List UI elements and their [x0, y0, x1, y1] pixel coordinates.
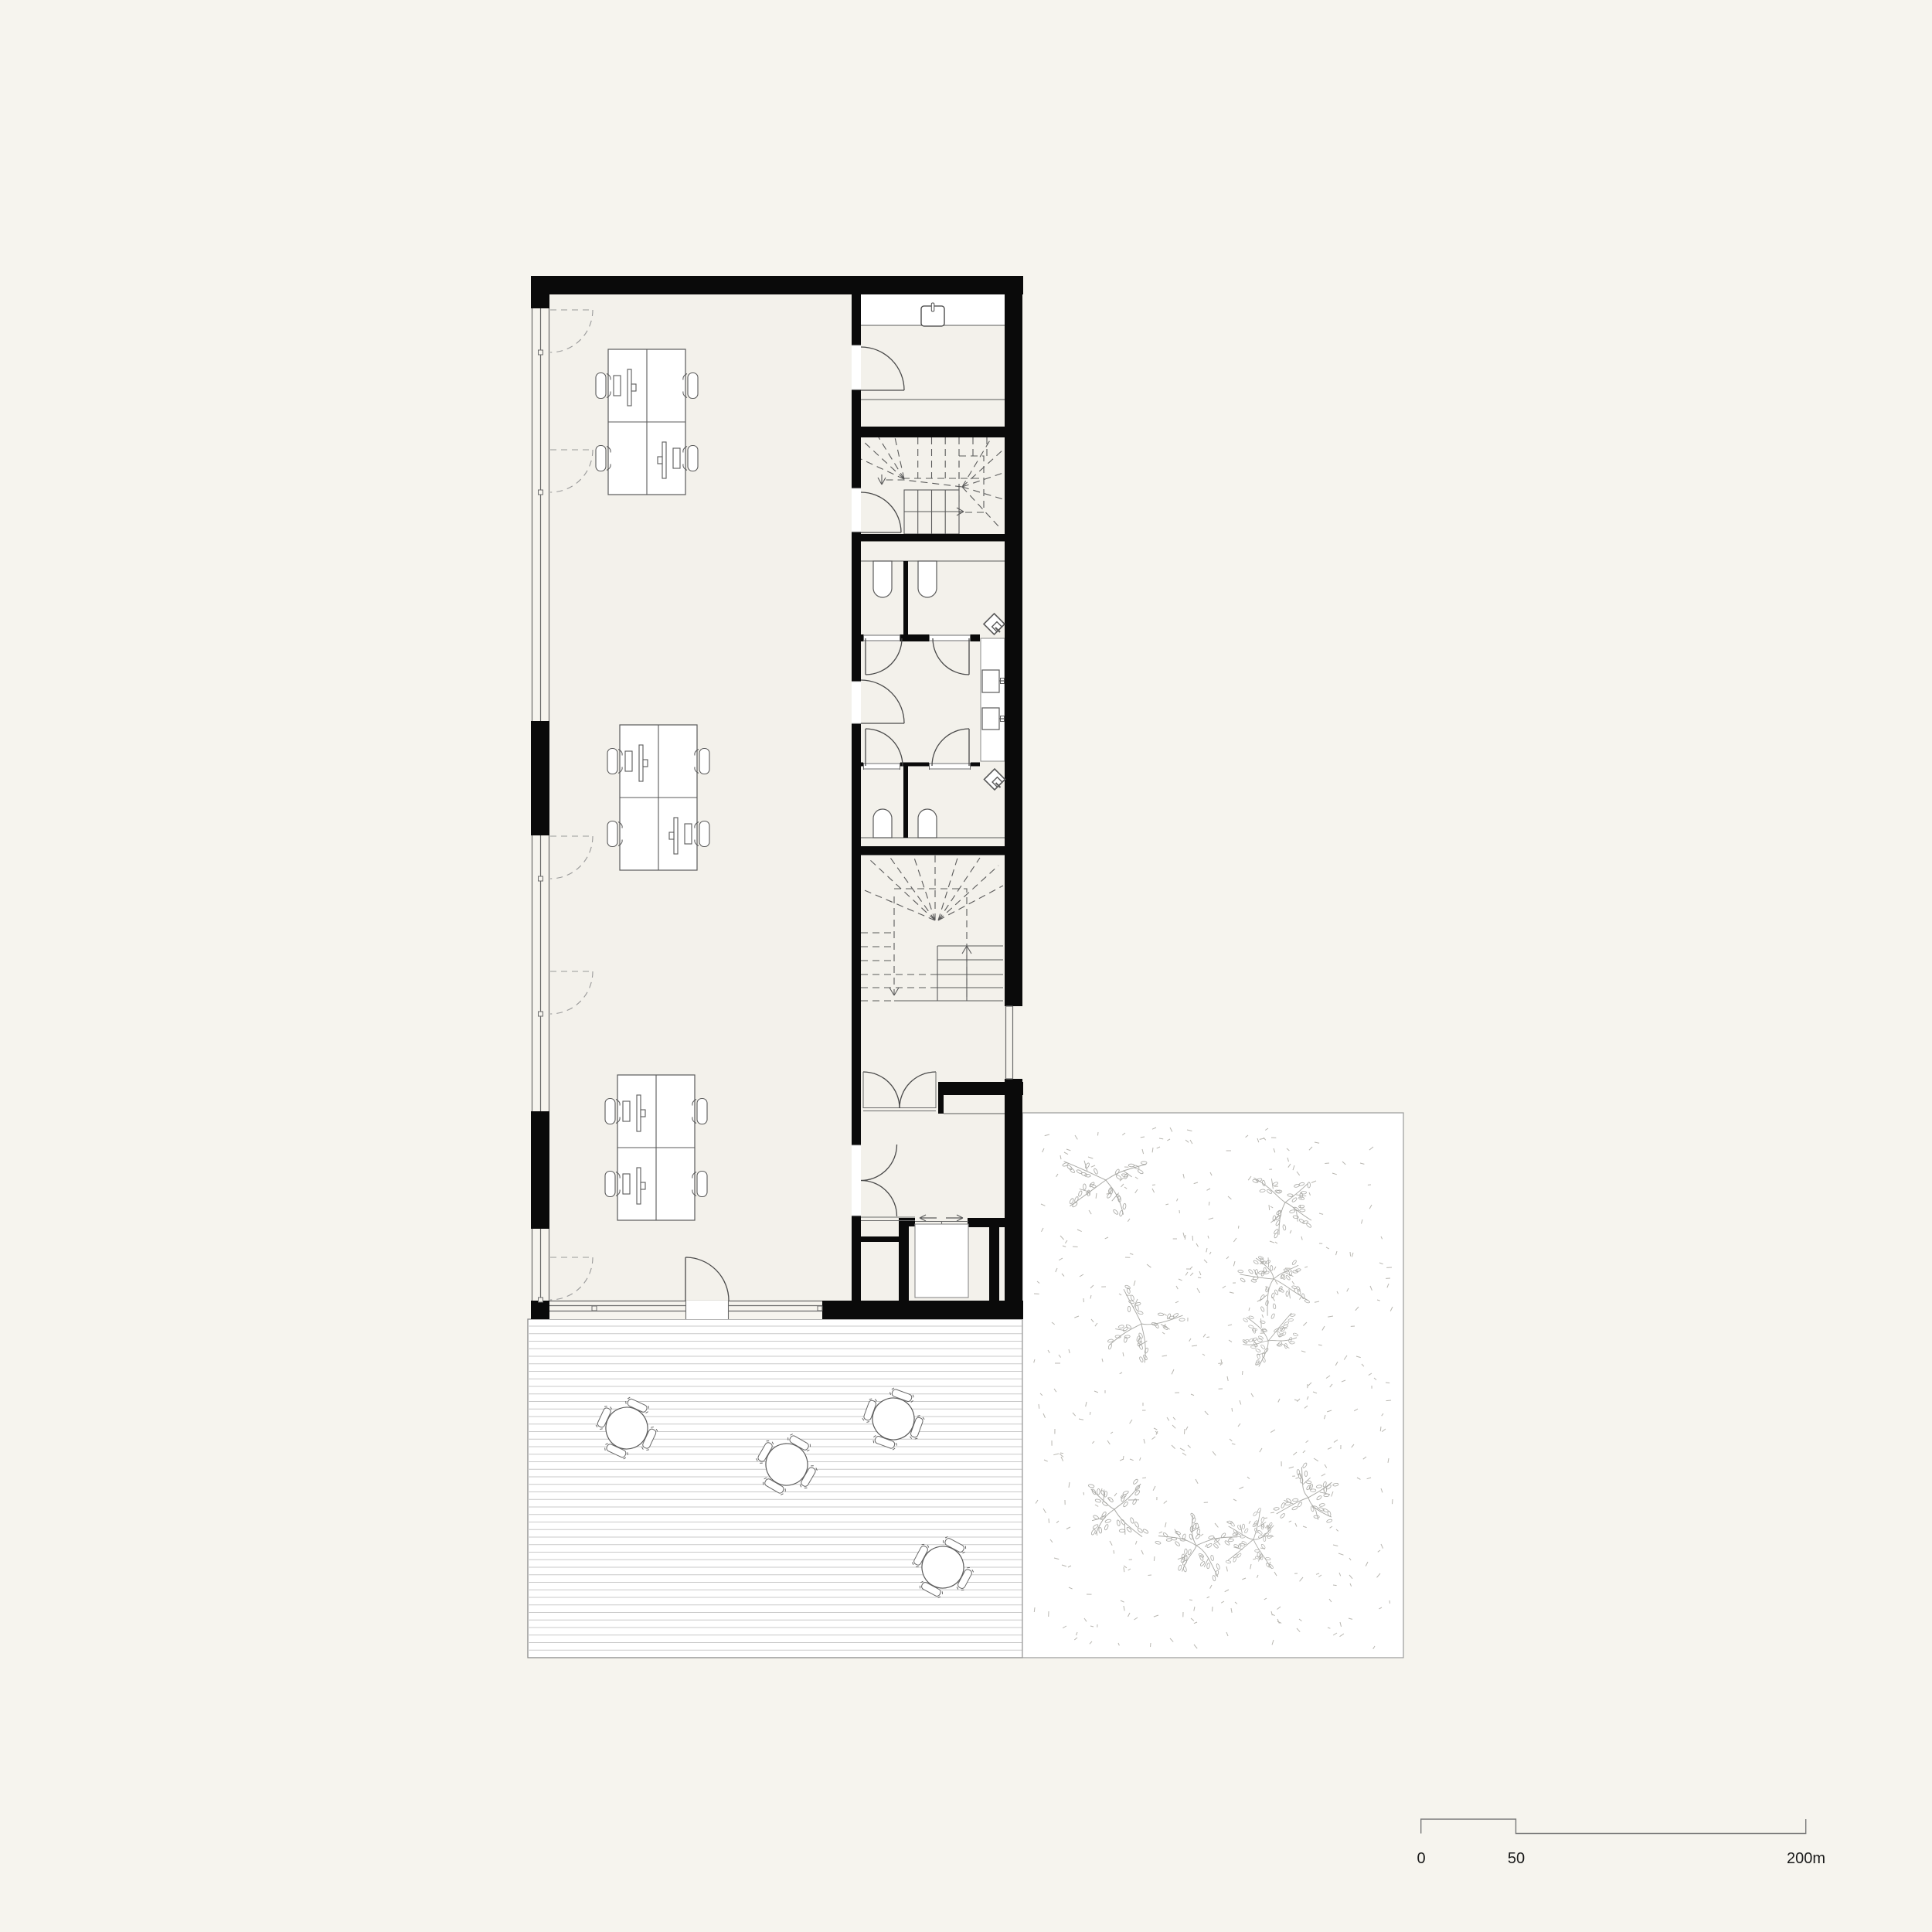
- svg-text:50: 50: [1508, 1850, 1525, 1867]
- svg-text:200m: 200m: [1787, 1850, 1825, 1867]
- svg-text:0: 0: [1417, 1850, 1425, 1867]
